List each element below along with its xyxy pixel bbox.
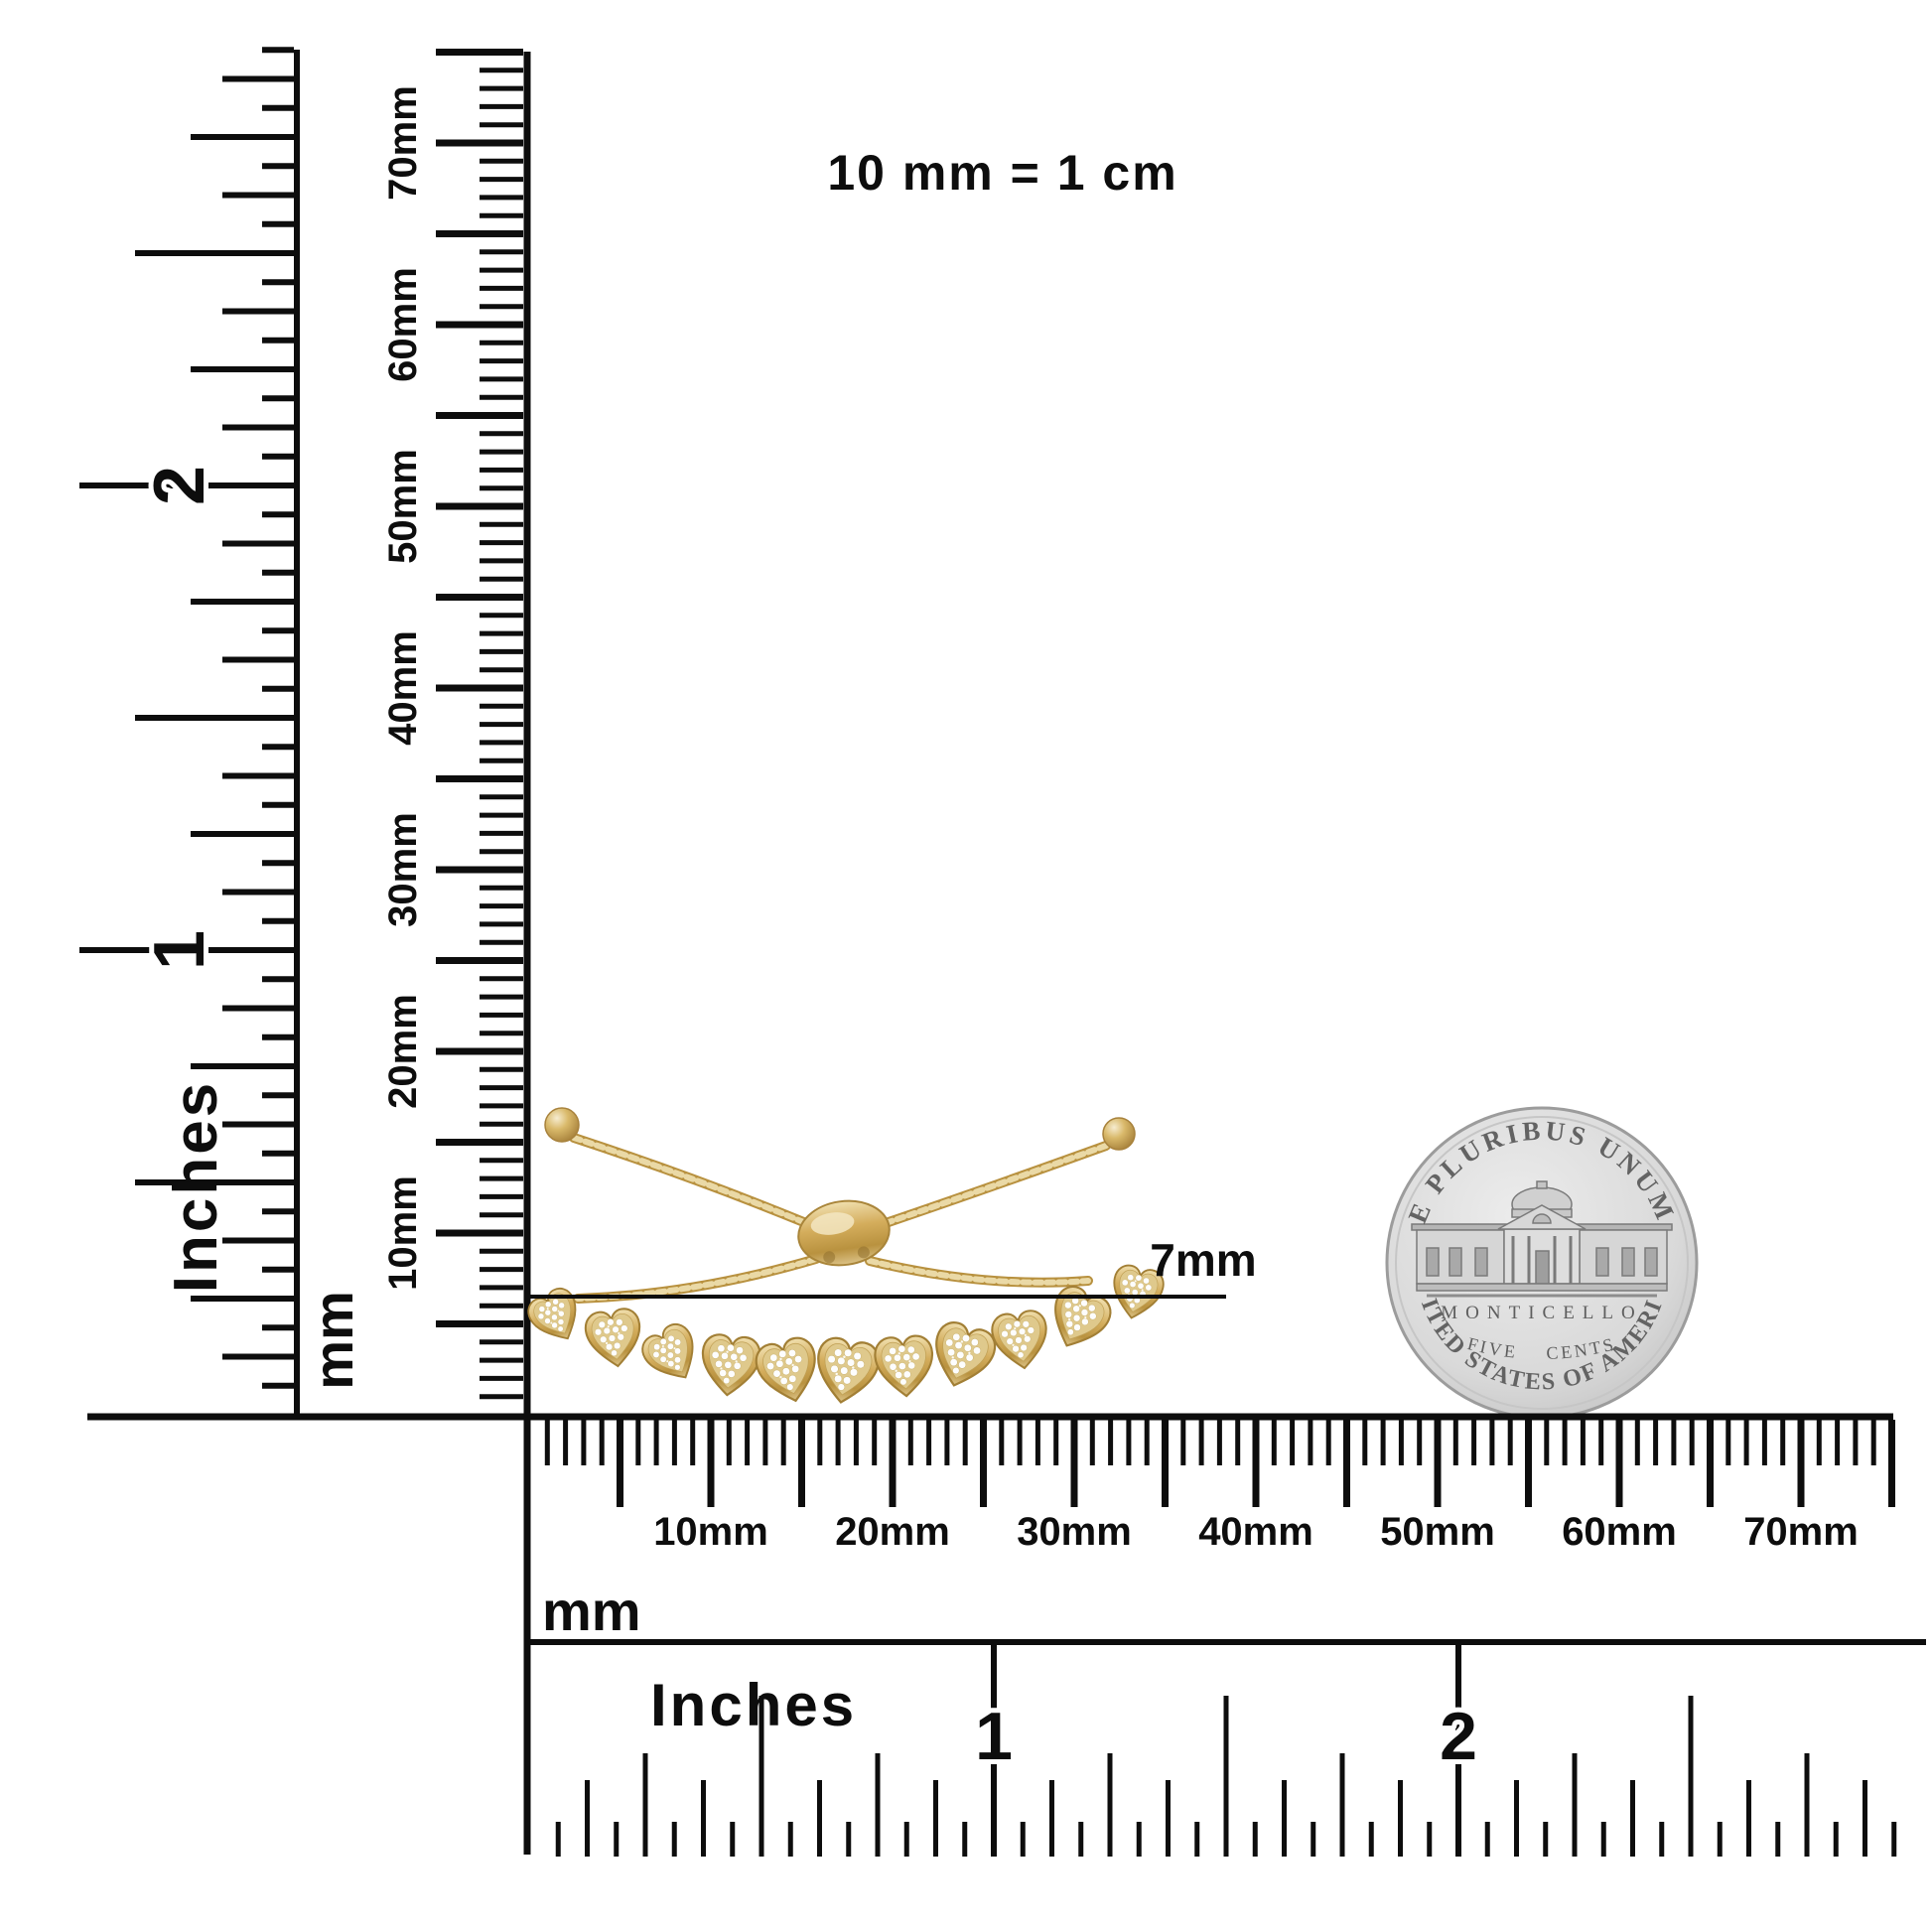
coin-building-name: MONTICELLO (1441, 1303, 1642, 1323)
horizontal-mm-label: 10mm (653, 1510, 768, 1554)
pave-heart-charm (637, 1319, 708, 1391)
vertical-mm-label: 10mm (381, 1175, 425, 1291)
pave-heart-charm (925, 1318, 999, 1393)
horizontal-mm-label: 60mm (1562, 1510, 1677, 1554)
horizontal-mm-unit-label: mm (542, 1580, 641, 1642)
vertical-mm-label: 40mm (381, 630, 425, 746)
vertical-mm-label: 30mm (381, 812, 425, 927)
conversion-note: 10 mm = 1 cm (827, 145, 1177, 201)
pave-heart-charm (753, 1334, 824, 1408)
pave-heart-charm (874, 1334, 935, 1398)
chain-end-bead-right (1103, 1118, 1135, 1150)
pave-heart-charm (699, 1333, 762, 1398)
horizontal-mm-label: 40mm (1198, 1510, 1313, 1554)
horizontal-mm-label: 30mm (1017, 1510, 1132, 1554)
scene: E PLURIBUS UNUM UNITED STATES OF AMERICA… (0, 0, 1932, 1932)
vertical-mm-label: 70mm (381, 85, 425, 201)
product-measurement-image: E PLURIBUS UNUM UNITED STATES OF AMERICA… (0, 0, 1932, 1932)
vertical-inches-number: 1 (140, 930, 219, 970)
horizontal-inches-number: 1 (975, 1699, 1013, 1774)
vertical-mm-label: 50mm (381, 449, 425, 564)
measurement-label: 7mm (1150, 1234, 1256, 1286)
horizontal-inches-number: 2 (1440, 1699, 1477, 1774)
vertical-mm-label: 20mm (381, 994, 425, 1109)
bracelet (523, 1108, 1166, 1408)
horizontal-mm-label: 20mm (835, 1510, 950, 1554)
pave-heart-charm (811, 1335, 882, 1408)
horizontal-inches-unit-label: Inches (650, 1672, 857, 1738)
rulers: 1210mm20mm30mm40mm50mm60mm70mm10mm20mm30… (79, 50, 1926, 1857)
horizontal-mm-label: 70mm (1743, 1510, 1859, 1554)
horizontal-mm-label: 50mm (1380, 1510, 1495, 1554)
vertical-mm-label: 60mm (381, 267, 425, 382)
vertical-inches-number: 2 (140, 466, 219, 505)
pave-heart-charm (584, 1307, 645, 1369)
vertical-inches-unit-label: Inches (162, 1080, 230, 1293)
pave-heart-charm (1041, 1282, 1116, 1357)
chain-end-bead-left (545, 1108, 579, 1142)
pave-heart-charm (990, 1309, 1051, 1371)
vertical-mm-unit-label: mm (302, 1291, 364, 1390)
